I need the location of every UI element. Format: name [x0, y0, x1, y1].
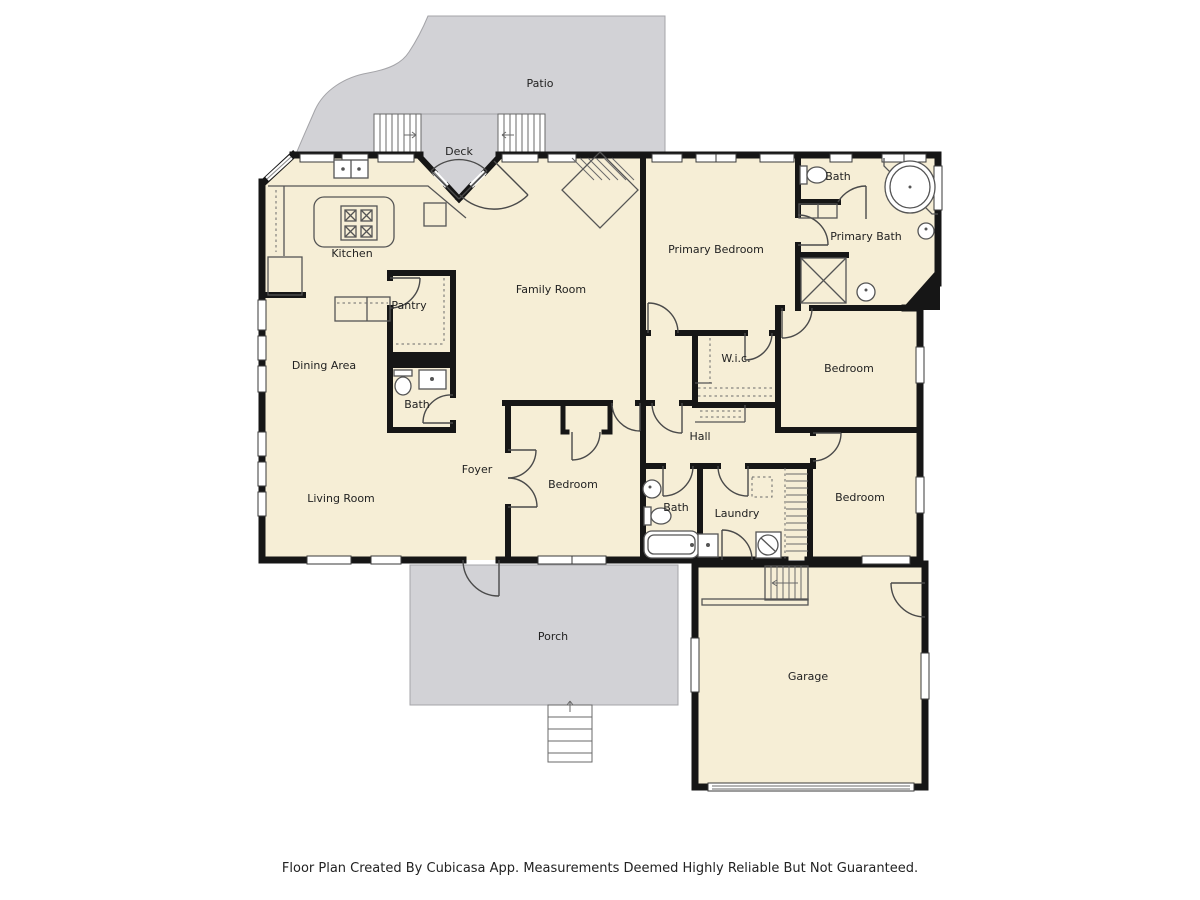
washer-icon	[756, 532, 781, 558]
toilet-icon	[800, 166, 807, 184]
floor-plan-svg: Patio Deck Kitchen Pantry Family Room Pr…	[0, 0, 1200, 900]
kitchen-island	[314, 197, 394, 247]
room-label-patio: Patio	[527, 77, 554, 90]
toilet-icon	[644, 507, 651, 525]
room-label-kitchen: Kitchen	[331, 247, 372, 260]
room-label-dining-area: Dining Area	[292, 359, 356, 372]
footer-disclaimer: Floor Plan Created By Cubicasa App. Meas…	[282, 861, 918, 876]
room-label-porch: Porch	[538, 630, 568, 643]
room-label-primary-bath: Primary Bath	[830, 230, 902, 243]
room-label-primary-bedroom: Primary Bedroom	[668, 243, 764, 256]
floor-plan-page: Patio Deck Kitchen Pantry Family Room Pr…	[0, 0, 1200, 900]
room-label-upper-bath: Bath	[825, 170, 851, 183]
room-label-bedroom-center: Bedroom	[548, 478, 598, 491]
bathtub-icon	[644, 531, 699, 558]
sink-icon	[857, 283, 875, 301]
room-label-wic: W.i.c.	[721, 352, 750, 365]
deck-stairs-right	[498, 114, 545, 156]
room-label-hall-bath: Bath	[663, 501, 689, 514]
room-label-hall: Hall	[689, 430, 710, 443]
deck-stairs-left	[374, 114, 421, 156]
room-label-middle-bath: Bath	[404, 398, 430, 411]
sink-icon	[643, 480, 661, 498]
toilet-icon	[394, 370, 412, 376]
room-label-garage: Garage	[788, 670, 829, 683]
room-label-bedroom-se: Bedroom	[835, 491, 885, 504]
porch-steps	[548, 701, 592, 762]
room-label-family-room: Family Room	[516, 283, 586, 296]
room-label-living-room: Living Room	[307, 492, 375, 505]
room-label-bedroom-ne: Bedroom	[824, 362, 874, 375]
room-label-deck: Deck	[445, 145, 473, 158]
kitchen-sink-icon	[334, 160, 368, 178]
room-label-laundry: Laundry	[715, 507, 760, 520]
room-label-foyer: Foyer	[462, 463, 493, 476]
room-label-pantry: Pantry	[391, 299, 427, 312]
sink-icon	[918, 223, 934, 239]
